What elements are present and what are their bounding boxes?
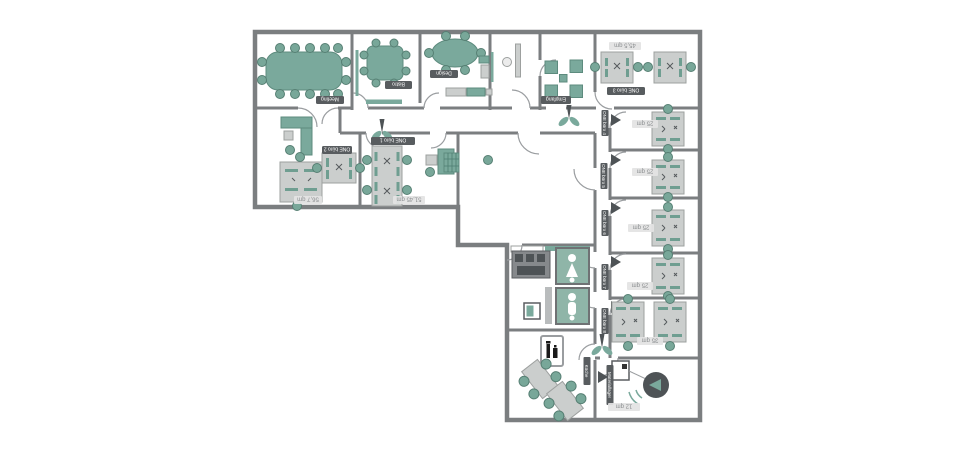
oval-table — [432, 39, 478, 67]
room-label: ONE büro 5 — [601, 163, 608, 189]
coffee-table — [284, 131, 293, 140]
room-label: Küche — [584, 357, 591, 385]
side-table — [560, 75, 568, 83]
sideboard — [366, 100, 402, 105]
desk-cluster — [654, 52, 686, 83]
room-name: ONE büro 5 — [601, 164, 606, 188]
room-design: Design — [425, 32, 493, 97]
whiteboard — [356, 50, 359, 96]
svg-text:56,7 qm: 56,7 qm — [297, 196, 319, 202]
room-name: ONE büro 3 — [613, 87, 640, 93]
conference-table — [266, 52, 342, 90]
shaft — [545, 287, 552, 324]
area-label: 25 qm — [628, 224, 654, 233]
room-label: ONE büro 2 — [322, 146, 352, 154]
area-label: 25 qm — [632, 120, 658, 129]
wc-block — [512, 248, 589, 324]
svg-text:35 qm: 35 qm — [642, 337, 659, 343]
elevator-icon — [444, 153, 459, 172]
room-name: Empfang — [546, 96, 566, 102]
svg-text:25 qm: 25 qm — [637, 168, 654, 174]
room-buero3: 45,5 qm ONE büro 3 — [591, 42, 696, 96]
svg-text:25 qm: 25 qm — [632, 282, 649, 288]
area-label: 51,45 qm — [393, 196, 425, 205]
door-arc — [574, 169, 595, 190]
room-label: ONE büro 1 — [371, 137, 415, 145]
cabinet — [426, 155, 437, 165]
desk-cluster — [654, 302, 686, 342]
room-label: ONE büro 6 — [602, 210, 609, 236]
table — [367, 46, 403, 80]
door-pivot — [503, 58, 512, 67]
desk-cluster — [322, 153, 356, 183]
svg-text:25 qm: 25 qm — [633, 224, 650, 230]
sofa — [281, 117, 312, 128]
room-name: ONE büro 7 — [602, 265, 607, 289]
area-label: 25 qm — [627, 282, 653, 291]
credenza — [446, 88, 466, 96]
credenza — [467, 88, 485, 96]
room-name: ONE büro 2 — [324, 146, 351, 152]
svg-text:51,45 qm: 51,45 qm — [396, 196, 421, 202]
desk-cluster — [652, 160, 684, 194]
desk-cluster — [601, 52, 633, 83]
room-label: Bistro — [385, 81, 412, 89]
area-label: 12 qm — [608, 403, 640, 412]
room-buero1: ONE büro 1 51,45 qm — [363, 137, 493, 206]
door-arc — [518, 133, 539, 154]
speaker-icon — [629, 372, 669, 404]
room-name: ONE büro 4 — [602, 111, 607, 135]
room-name: Materiallager — [607, 372, 612, 399]
room-name: Küche — [584, 365, 589, 378]
entrance-door-leaf — [516, 44, 521, 77]
room-name: Meeting — [321, 96, 339, 102]
room-name: ONE büro 6 — [602, 211, 607, 235]
room-label: ONE büro 7 — [602, 264, 609, 290]
svg-text:45,5 qm: 45,5 qm — [614, 42, 636, 48]
cabinet — [612, 361, 629, 380]
room-buero2: ONE büro 2 56,7 qm — [280, 117, 365, 211]
sofa — [301, 128, 312, 155]
door-arc — [431, 133, 446, 148]
washer-icon — [524, 303, 540, 319]
room-bistro: Bistro — [360, 39, 412, 104]
room-buero8: 35 qm ONE büro 8 — [602, 295, 687, 351]
svg-text:25 qm: 25 qm — [637, 120, 654, 126]
door-arc — [322, 108, 338, 124]
room-name: Design — [436, 70, 452, 76]
room-name: Bistro — [392, 81, 405, 87]
area-label: 35 qm — [637, 337, 663, 346]
room-empfang: Empfang — [541, 60, 583, 104]
room-label: Materiallager — [607, 365, 614, 405]
room-buero4: 25 qm ONE büro 4 — [602, 105, 685, 154]
room-label: Empfang — [541, 96, 571, 104]
area-label: 56,7 qm — [294, 196, 322, 205]
armchair — [570, 60, 583, 73]
wall-board — [491, 52, 494, 82]
room-meeting: Meeting — [258, 44, 359, 105]
room-lager: Materiallager 12 qm — [607, 361, 670, 411]
central-core — [444, 153, 590, 252]
room-label: Meeting — [316, 96, 344, 104]
area-label: 25 qm — [632, 168, 658, 177]
room-kueche: Küche — [515, 336, 591, 426]
chair — [484, 156, 493, 165]
desk-cluster — [652, 210, 684, 246]
room-label: ONE büro 4 — [602, 110, 609, 136]
door-arc — [512, 90, 530, 108]
door-arc — [353, 93, 368, 108]
floor-plan: Meeting Bistro Design — [0, 0, 960, 463]
room-name: ONE büro 1 — [380, 137, 407, 143]
desk-cluster — [652, 112, 684, 146]
room-label: ONE büro 3 — [607, 87, 645, 95]
armchair — [570, 85, 583, 98]
locker-rack — [512, 251, 550, 278]
svg-text:12 qm: 12 qm — [616, 403, 633, 409]
entrance-vestibule — [491, 44, 521, 82]
room-label: ONE büro 8 — [602, 308, 609, 334]
room-name: ONE büro 8 — [602, 309, 607, 333]
wc-men — [556, 288, 589, 324]
armchair — [545, 85, 558, 98]
desk-cluster — [652, 258, 684, 294]
wc-women — [556, 248, 589, 284]
door-arc — [424, 93, 439, 108]
desk-cluster — [612, 302, 644, 342]
area-label: 45,5 qm — [609, 42, 641, 51]
room-label: Design — [430, 70, 458, 78]
armchair — [545, 61, 558, 74]
